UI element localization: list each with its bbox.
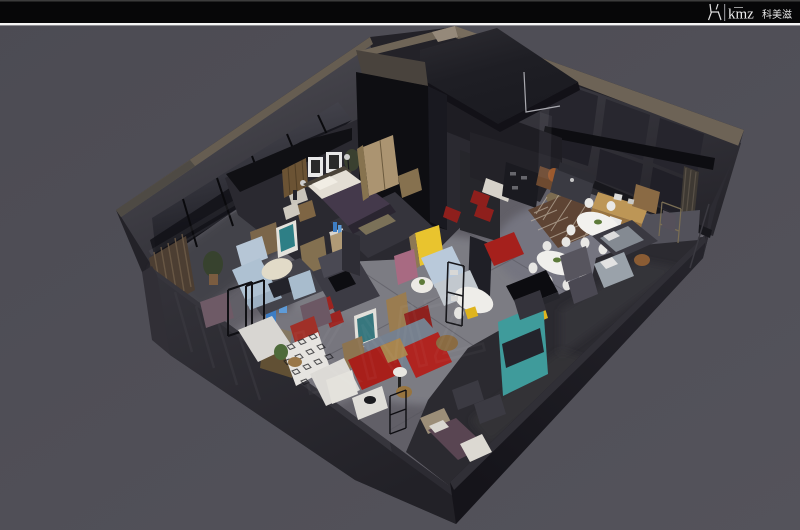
svg-text:科美滋: 科美滋: [762, 8, 792, 21]
svg-text:kmz: kmz: [728, 7, 754, 23]
